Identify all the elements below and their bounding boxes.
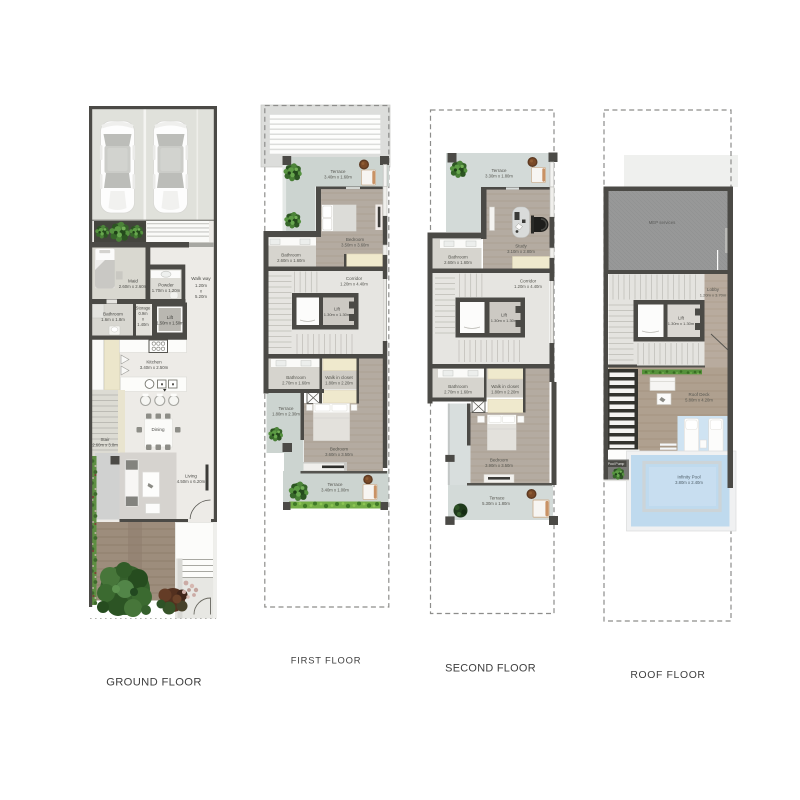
svg-text:Bedroom: Bedroom bbox=[330, 447, 349, 452]
svg-text:3.90m x 3.50m: 3.90m x 3.50m bbox=[485, 463, 513, 468]
svg-text:Lobby: Lobby bbox=[707, 287, 720, 292]
svg-text:Living: Living bbox=[185, 474, 197, 479]
svg-text:1.30m x 1.30m: 1.30m x 1.30m bbox=[668, 321, 695, 326]
svg-text:Terrace: Terrace bbox=[491, 168, 507, 173]
svg-text:Walk way: Walk way bbox=[191, 276, 211, 281]
svg-text:Bathroom: Bathroom bbox=[448, 384, 468, 389]
svg-text:Maid: Maid bbox=[128, 279, 138, 284]
svg-text:Bathroom: Bathroom bbox=[103, 312, 123, 317]
svg-text:1.50m x 1.50m: 1.50m x 1.50m bbox=[156, 321, 184, 326]
svg-text:Corridor: Corridor bbox=[346, 276, 363, 281]
svg-text:Bedroom: Bedroom bbox=[490, 458, 509, 463]
svg-text:1.80m x 2.20m: 1.80m x 2.20m bbox=[491, 390, 519, 395]
svg-text:Kitchen: Kitchen bbox=[146, 360, 162, 365]
svg-text:1.40m: 1.40m bbox=[137, 322, 149, 327]
svg-text:Bathroom: Bathroom bbox=[281, 253, 301, 258]
svg-text:Bathroom: Bathroom bbox=[448, 255, 468, 260]
svg-text:2.60m x 2.60m: 2.60m x 2.60m bbox=[119, 284, 148, 289]
svg-text:2.70m x 1.60m: 2.70m x 1.60m bbox=[282, 381, 310, 386]
svg-text:Walk in closet: Walk in closet bbox=[491, 384, 519, 389]
svg-text:5.20m: 5.20m bbox=[195, 294, 207, 299]
svg-text:1.80m x 2.30m: 1.80m x 2.30m bbox=[272, 412, 300, 417]
svg-text:Terrace: Terrace bbox=[278, 406, 294, 411]
svg-text:Corridor: Corridor bbox=[520, 279, 537, 284]
svg-text:3.40m x 1.60m: 3.40m x 1.60m bbox=[324, 175, 352, 180]
svg-text:2.60m x 3.0m: 2.60m x 3.0m bbox=[92, 443, 118, 448]
svg-text:Infinity Pool: Infinity Pool bbox=[677, 475, 700, 480]
svg-text:1.20m x 4.40m: 1.20m x 4.40m bbox=[514, 284, 542, 289]
svg-text:x: x bbox=[142, 317, 144, 322]
svg-text:1.20m x 4.40m: 1.20m x 4.40m bbox=[340, 282, 368, 287]
svg-text:Storage: Storage bbox=[136, 306, 151, 311]
svg-text:Lift: Lift bbox=[678, 316, 685, 321]
svg-text:1.20m x 3.70m: 1.20m x 3.70m bbox=[700, 293, 727, 298]
svg-text:3.30m x 1.80m: 3.30m x 1.80m bbox=[485, 174, 513, 179]
svg-text:3.80m x 2.40m: 3.80m x 2.40m bbox=[675, 480, 703, 485]
svg-text:Bathroom: Bathroom bbox=[286, 375, 306, 380]
svg-text:ROOF FLOOR: ROOF FLOOR bbox=[630, 670, 705, 681]
svg-text:FIRST FLOOR: FIRST FLOOR bbox=[291, 655, 362, 666]
svg-text:2.60m x 1.60m: 2.60m x 1.60m bbox=[277, 258, 305, 263]
svg-text:2.70m x 1.60m: 2.70m x 1.60m bbox=[444, 390, 472, 395]
svg-text:Walk in closet: Walk in closet bbox=[325, 375, 353, 380]
svg-text:Terrace: Terrace bbox=[489, 496, 505, 501]
svg-text:3.40m x 1.00m: 3.40m x 1.00m bbox=[321, 488, 349, 493]
svg-text:3.10m x 2.80m: 3.10m x 2.80m bbox=[507, 249, 535, 254]
svg-text:3.50m x 3.60m: 3.50m x 3.60m bbox=[341, 243, 369, 248]
svg-text:Lift: Lift bbox=[334, 307, 341, 312]
svg-text:Stair: Stair bbox=[100, 437, 110, 442]
svg-text:5.80m x 4.20m: 5.80m x 4.20m bbox=[685, 398, 713, 403]
svg-text:4.50m x 6.20m: 4.50m x 6.20m bbox=[177, 479, 206, 484]
svg-text:Lift: Lift bbox=[501, 313, 508, 318]
svg-text:3.60m x 3.50m: 3.60m x 3.50m bbox=[325, 452, 353, 457]
svg-text:1.20m: 1.20m bbox=[195, 283, 207, 288]
svg-text:Bedroom: Bedroom bbox=[346, 237, 365, 242]
svg-text:1.80m x 2.20m: 1.80m x 2.20m bbox=[325, 381, 353, 386]
svg-text:1.30m x 1.30m: 1.30m x 1.30m bbox=[491, 318, 518, 323]
svg-text:Study: Study bbox=[515, 244, 527, 249]
svg-text:3.40m x 2.50m: 3.40m x 2.50m bbox=[140, 365, 169, 370]
svg-text:1.30m x 1.30m: 1.30m x 1.30m bbox=[324, 312, 351, 317]
svg-text:Powder: Powder bbox=[158, 283, 174, 288]
svg-text:5.30m x 1.80m: 5.30m x 1.80m bbox=[482, 501, 510, 506]
svg-text:Terrace: Terrace bbox=[330, 169, 346, 174]
svg-text:Roof Deck: Roof Deck bbox=[688, 392, 710, 397]
svg-text:Terrace: Terrace bbox=[327, 482, 343, 487]
svg-text:GROUND FLOOR: GROUND FLOOR bbox=[106, 677, 202, 689]
svg-text:2.60m x 1.60m: 2.60m x 1.60m bbox=[444, 260, 472, 265]
svg-text:Pool Pump: Pool Pump bbox=[608, 462, 625, 466]
svg-text:MEP services: MEP services bbox=[649, 220, 677, 225]
svg-text:Lift: Lift bbox=[167, 315, 174, 320]
svg-text:1.70m x 1.20m: 1.70m x 1.20m bbox=[152, 288, 181, 293]
svg-text:SECOND FLOOR: SECOND FLOOR bbox=[445, 663, 536, 675]
svg-text:0.9m: 0.9m bbox=[138, 311, 148, 316]
svg-text:Dining: Dining bbox=[151, 427, 164, 432]
svg-text:1.6m x 1.8m: 1.6m x 1.8m bbox=[101, 317, 125, 322]
